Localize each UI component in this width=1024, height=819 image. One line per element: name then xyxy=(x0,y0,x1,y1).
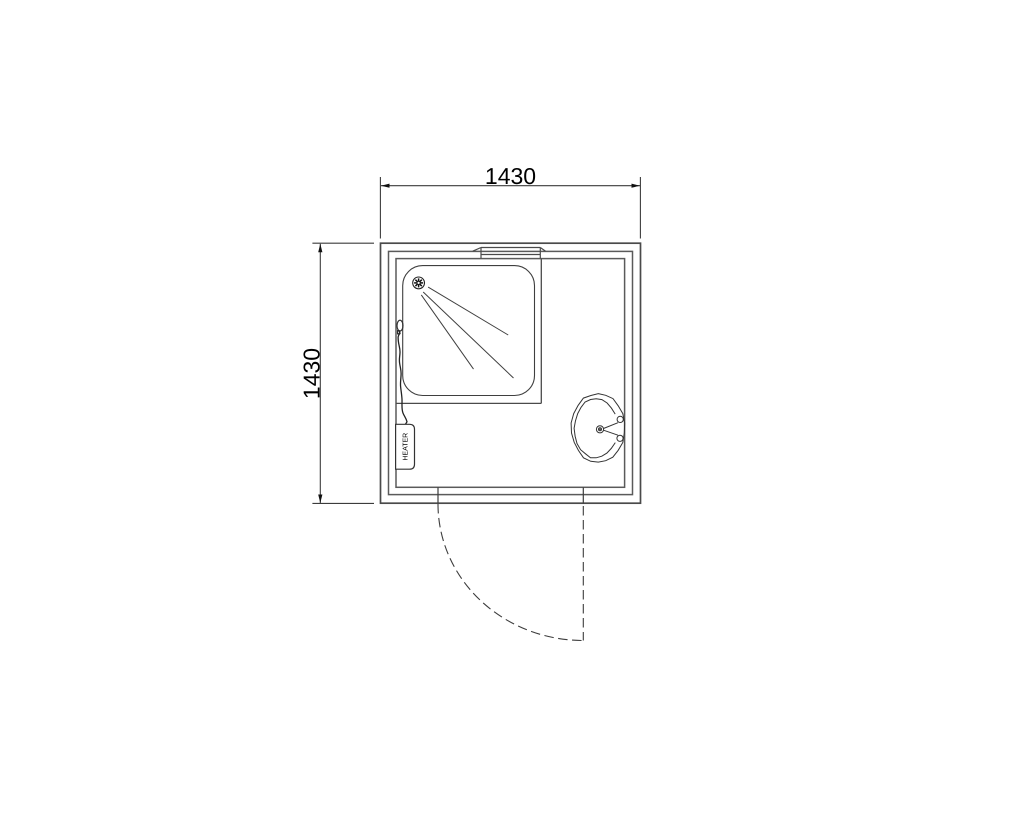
svg-text:1430: 1430 xyxy=(485,163,536,189)
svg-text:HEATER: HEATER xyxy=(403,433,410,461)
svg-text:1430: 1430 xyxy=(299,348,325,399)
